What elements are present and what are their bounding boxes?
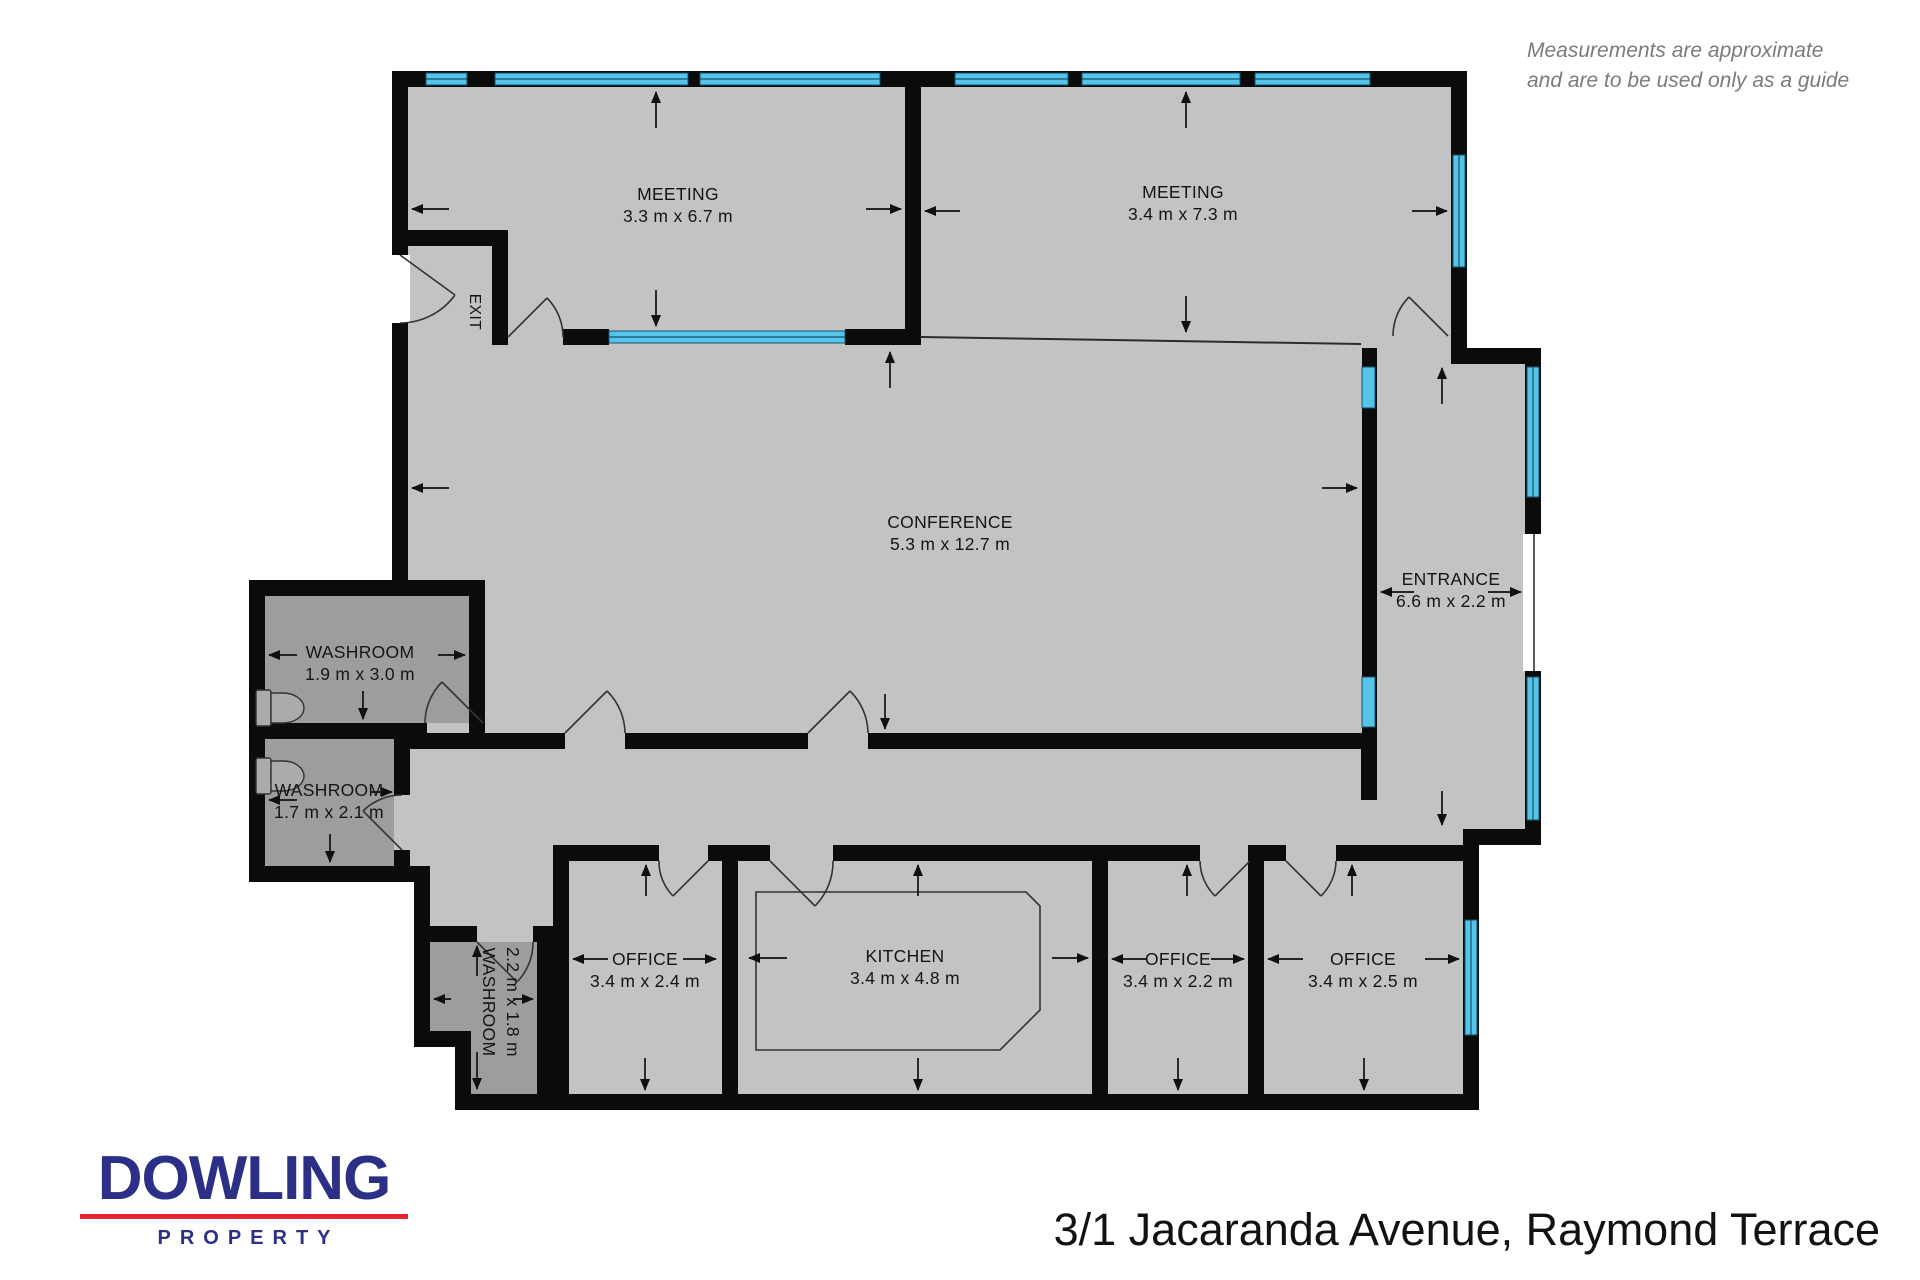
floor-plan-drawing: MEETING 3.3 m x 6.7 m MEETING 3.4 m x 7.… (0, 0, 1920, 1280)
room-label-office-1: OFFICE (612, 949, 678, 969)
room-label-meeting-1: MEETING (637, 184, 719, 204)
room-dims-kitchen: 3.4 m x 4.8 m (850, 968, 960, 988)
agency-logo-name: DOWLING (78, 1148, 410, 1210)
room-label-washroom-2: WASHROOM (275, 780, 384, 800)
room-label-conference: CONFERENCE (887, 512, 1013, 532)
room-dims-meeting-1: 3.3 m x 6.7 m (623, 206, 733, 226)
room-dims-entrance: 6.6 m x 2.2 m (1396, 591, 1506, 611)
room-dims-washroom-2: 1.7 m x 2.1 m (274, 802, 384, 822)
room-dims-washroom-1: 1.9 m x 3.0 m (305, 664, 415, 684)
exit-door-opening (390, 255, 410, 323)
disclaimer-note: Measurements are approximate and are to … (1527, 36, 1849, 97)
room-label-office-2: OFFICE (1145, 949, 1211, 969)
disclaimer-line-1: Measurements are approximate (1527, 36, 1849, 66)
room-label-washroom-3: WASHROOM (479, 948, 499, 1057)
room-label-exit: EXIT (466, 294, 483, 330)
room-label-kitchen: KITCHEN (866, 946, 945, 966)
room-dims-office-2: 3.4 m x 2.2 m (1123, 971, 1233, 991)
room-label-entrance: ENTRANCE (1402, 569, 1501, 589)
agency-logo-divider (80, 1214, 408, 1219)
room-dims-meeting-2: 3.4 m x 7.3 m (1128, 204, 1238, 224)
entrance-door-opening (1523, 534, 1543, 671)
room-dims-office-3: 3.4 m x 2.5 m (1308, 971, 1418, 991)
property-address: 3/1 Jacaranda Avenue, Raymond Terrace (1054, 1204, 1880, 1256)
room-label-washroom-1: WASHROOM (306, 642, 415, 662)
floor-plan-page: MEETING 3.3 m x 6.7 m MEETING 3.4 m x 7.… (0, 0, 1920, 1280)
room-dims-washroom-3: 2.2 m x 1.8 m (503, 947, 523, 1057)
room-dims-office-1: 3.4 m x 2.4 m (590, 971, 700, 991)
agency-logo-subtitle: PROPERTY (78, 1227, 410, 1250)
agency-logo: DOWLING PROPERTY (78, 1148, 410, 1250)
room-label-meeting-2: MEETING (1142, 182, 1224, 202)
room-dims-conference: 5.3 m x 12.7 m (890, 534, 1010, 554)
disclaimer-line-2: and are to be used only as a guide (1527, 66, 1849, 96)
room-label-office-3: OFFICE (1330, 949, 1396, 969)
